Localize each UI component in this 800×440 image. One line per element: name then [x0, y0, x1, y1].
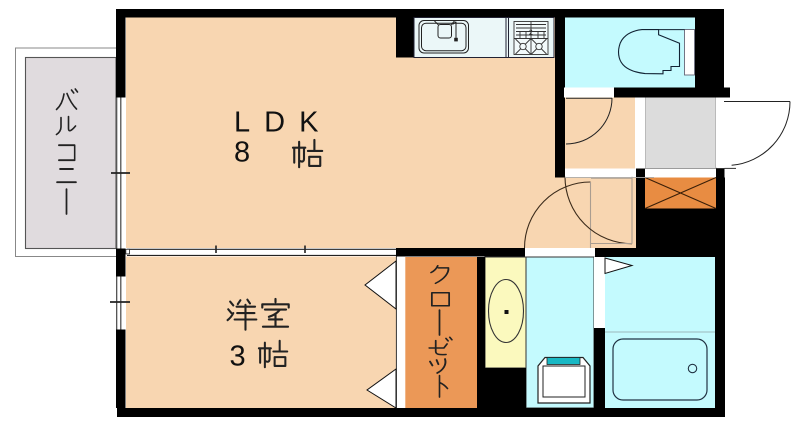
svg-text:LDK: LDK [234, 107, 332, 139]
svg-text:8: 8 [234, 137, 250, 169]
svg-text:3: 3 [230, 341, 246, 373]
